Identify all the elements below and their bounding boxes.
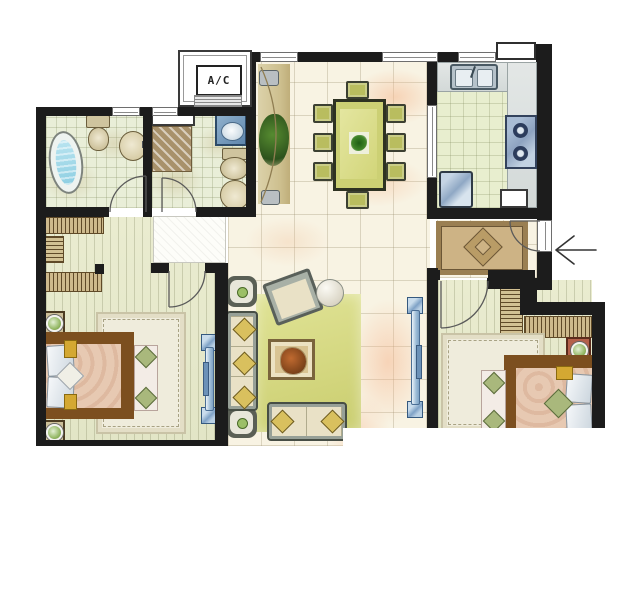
sliding-door-handle [416,345,422,379]
wall [537,54,552,220]
floor-plan: A/C [0,0,640,597]
lamp-icon [46,315,63,332]
refrigerator [439,171,473,208]
wall [488,270,535,280]
wardrobe [44,217,104,234]
wardrobe [44,236,64,263]
sideboard-knob [261,190,280,205]
side-table [226,407,257,438]
blanket-fold [64,340,77,358]
dining-chair [346,191,369,209]
wall [592,302,605,429]
wall [36,207,109,217]
wall [205,263,228,273]
double-bed [43,332,134,419]
burner-icon [513,146,528,161]
wall [438,52,458,62]
coffee-table [268,339,315,380]
ac-platform: A/C [178,50,252,107]
vanity-sink [215,114,247,146]
wall [427,270,440,280]
wall [536,44,552,62]
dining-chair [346,81,369,99]
wall-pier [95,264,104,274]
window [112,107,140,116]
toilet [88,127,109,151]
ac-label: A/C [196,65,242,96]
dining-chair [386,162,406,181]
plant-icon [281,348,306,374]
wall [196,207,252,217]
wall [215,263,228,446]
dining-chair [386,104,406,123]
sideboard-knob [259,70,279,86]
accent-pillow [483,372,506,395]
kitchen-sink [450,64,498,90]
plant-icon [237,287,248,298]
wall [143,107,152,217]
wardrobe [44,272,102,292]
vestibule-floor [153,216,226,263]
wall [151,263,169,273]
window [152,107,178,116]
dining-chair [313,133,333,152]
sliding-door-handle [203,362,209,396]
double-bed [504,355,592,432]
bed-bench [134,345,158,411]
bed-bench [481,370,506,434]
dining-chair [313,162,333,181]
window [260,52,298,62]
burner-icon [513,123,528,138]
blanket-fold [64,394,77,410]
cooktop [505,115,537,169]
window [458,52,496,62]
ac-louver-icon [194,95,242,107]
lamp-icon [46,424,63,441]
accent-pillow [135,387,158,410]
plant-icon [237,418,248,429]
dining-chair [313,104,333,123]
image-crop-mask [0,446,640,597]
entry-rug [436,221,528,275]
kitchen-pass-opening [427,105,437,178]
counter-end [500,189,528,208]
shower [152,126,192,172]
side-table [226,276,257,307]
arrow-left-icon [556,236,596,264]
accent-pillow [135,346,158,369]
dining-chair [386,133,406,152]
wall [36,107,46,447]
wall [427,268,438,429]
wall [298,52,382,62]
faucet-icon [470,66,476,78]
wall [427,208,537,219]
toilet [220,157,248,180]
blanket-fold [556,366,573,380]
window-bay [496,42,536,60]
sofa-loveseat [267,402,347,441]
dining-table [333,99,386,191]
sofa-three-seat [226,311,258,411]
window [382,52,438,62]
ottoman [316,279,344,307]
entry-door-opening [537,220,552,252]
